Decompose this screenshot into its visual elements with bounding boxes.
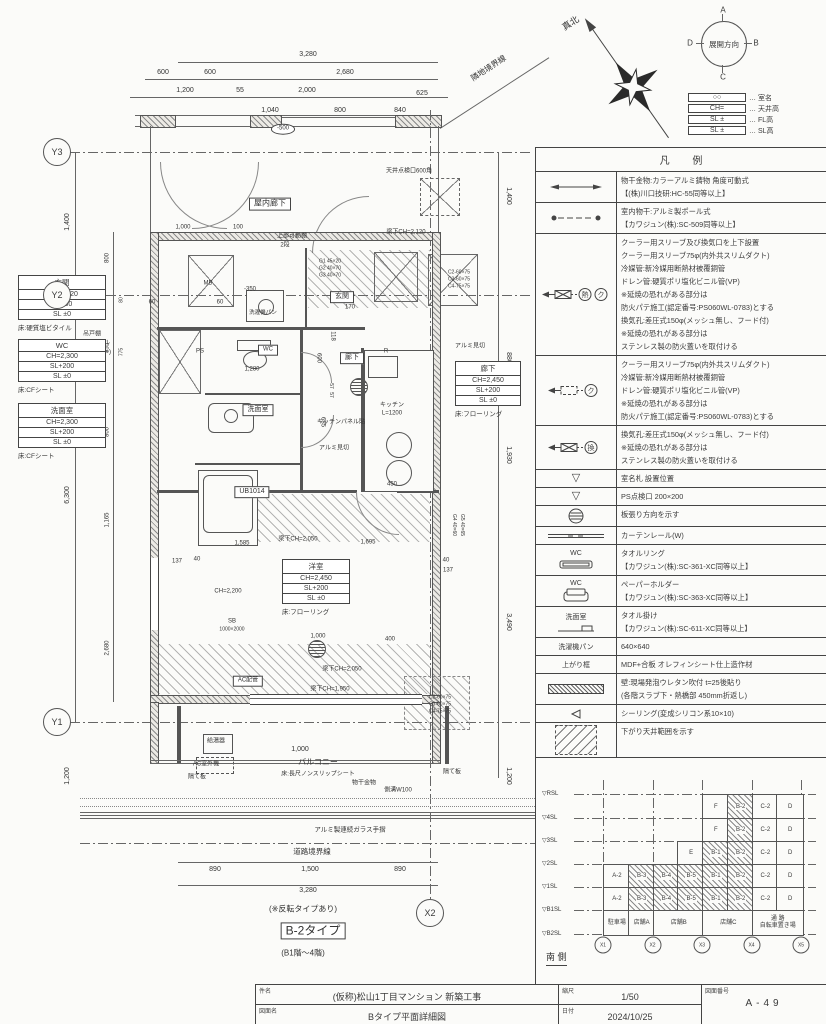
bathtub	[203, 475, 253, 533]
plan-label: G1 45×20	[319, 259, 341, 265]
drawing-name-value: Bタイプ平面詳細図	[256, 1006, 558, 1023]
unit-cell-hatched: B-2	[727, 864, 755, 889]
legend-text: MDF+合板 オレフィンシート仕上造作材	[617, 656, 826, 673]
unit-cell: D	[776, 841, 804, 866]
level-label: ▽B2SL	[542, 930, 561, 937]
plan-label: CH=2,200	[214, 589, 241, 596]
unit-cell-hatched: B-2	[727, 794, 755, 820]
ceiling-access-box	[420, 178, 460, 216]
scale-row: 縮尺 1/50	[559, 985, 701, 1004]
dim-line	[113, 232, 114, 702]
plan-label: G4 40×60	[450, 514, 456, 536]
plan-label: 隣地境界線	[470, 54, 508, 83]
legend-symbol-sk: ク	[536, 356, 617, 425]
legend-title: 凡 例	[536, 148, 826, 172]
plan-label: 1,400	[64, 213, 72, 231]
plan-label: 40	[194, 557, 201, 564]
legend-symbol-drop	[536, 723, 617, 757]
legend-symbol-ring: WC	[536, 545, 617, 575]
dim-line	[178, 885, 438, 886]
plan-label: 1,695	[360, 540, 375, 547]
elevation-grid-bubble-x4: X4	[743, 937, 760, 954]
legend-text: 板張り方向を示す	[617, 506, 826, 526]
legend-row: ▽室名札 設置位置	[536, 470, 826, 488]
plan-label: 57	[327, 383, 333, 389]
plan-label: R	[384, 349, 388, 356]
plan-label: 2,680	[336, 69, 354, 77]
legend-symbol-caption: WC	[570, 550, 582, 557]
room-tag-row: 洗面室	[18, 403, 106, 418]
plan-label: 1,400	[504, 187, 512, 205]
wall-segment	[395, 115, 442, 128]
plan-label: 1,200	[176, 87, 194, 95]
elevation-grid-bubble-x5: X5	[793, 937, 810, 954]
plan-label: キッチン	[380, 403, 404, 410]
grid-bubble-y2: Y2	[43, 281, 71, 309]
unit-cell: D	[776, 887, 804, 912]
legend-text: クーラー用スリーブ75φ(内外共スリムダクト)冷媒管:新冷媒用断熱材被覆銅管ドレ…	[617, 356, 826, 425]
plan-label: 1,585	[234, 541, 249, 548]
plan-label: 道路境界線	[293, 848, 331, 856]
plan-label: 625	[416, 90, 428, 98]
unit-cell-hatched: B-3	[628, 864, 656, 889]
key-table-row: SL ±… SL高	[688, 125, 822, 136]
compass-dir-b: B	[753, 39, 758, 48]
plan-label: 屋内廊下	[249, 198, 291, 211]
plan-label: 1,500	[301, 866, 319, 874]
plan-label: 1,165	[105, 512, 112, 527]
grid-line-y3	[70, 152, 530, 153]
legend-symbol-vh: 換	[536, 426, 617, 469]
legend-symbol-wall	[536, 674, 617, 704]
plan-label: G3 40×70	[319, 273, 341, 279]
svg-text:ク: ク	[598, 291, 605, 299]
plan-label: 梁下CH=2,050	[322, 667, 361, 674]
key-table-symbol: SL ±	[688, 115, 746, 124]
plan-label: 55	[236, 87, 244, 95]
compass-tick	[744, 43, 752, 44]
drawing-name-label: 図面名	[259, 1006, 277, 1015]
unfold-direction-circle: 展開方向	[701, 21, 747, 67]
flooring-direction-icon	[308, 640, 326, 658]
plan-label: 1,000	[291, 746, 309, 754]
balcony-sliding-window	[250, 694, 422, 705]
kitchen-cabinet	[368, 356, 398, 378]
wall-segment	[140, 115, 176, 128]
unit-cell: A-2	[603, 864, 631, 889]
elevation-grid-bubble-x2: X2	[644, 937, 661, 954]
unit-cell-hatched: B-4	[653, 887, 681, 912]
legend-row: 熱ククーラー用スリーブ及び換気口を上下設置クーラー用スリーブ75φ(内外共スリム…	[536, 234, 826, 356]
legend-row: ククーラー用スリーブ75φ(内外共スリムダクト)冷媒管:新冷媒用断熱材被覆銅管ド…	[536, 356, 826, 426]
room-tag: 廊下CH=2,450SL+200SL ±0床:フローリング	[455, 362, 521, 418]
legend-symbol-seal	[536, 705, 617, 722]
plan-label: C2-60×75	[448, 270, 470, 276]
plan-label: 600	[204, 69, 216, 77]
legend-symbol-holder: WC	[536, 576, 617, 606]
room-tag-row: 洋室	[282, 559, 350, 574]
subject-label: 件名	[259, 986, 271, 995]
plan-label: AC室外機	[193, 762, 219, 769]
plan-label: 80	[119, 297, 125, 303]
dim-line	[178, 862, 438, 863]
unit-cell-hatched: B-1	[702, 864, 730, 889]
plan-label: 洗濯機パン	[249, 310, 277, 316]
plan-label: G5 40×65	[458, 514, 464, 536]
legend-text: 640×640	[617, 638, 826, 655]
plan-label: 1,000	[310, 634, 325, 641]
glass-handrail-line	[80, 815, 535, 816]
legend-text: 下がり天井範囲を示す	[617, 723, 826, 757]
legend-row: 板張り方向を示す	[536, 506, 826, 527]
svg-text:換: 換	[588, 443, 595, 452]
legend-row: シーリング(変成シリコン系10×10)	[536, 705, 826, 723]
unit-cell: 店舗B	[653, 910, 706, 936]
unit-cell-hatched: B-1	[702, 887, 730, 912]
level-label: ▽4SL	[542, 814, 557, 821]
glass-handrail-line	[80, 812, 535, 813]
plan-label: C4-75×75	[429, 709, 451, 715]
plan-label: 1,930	[504, 446, 512, 464]
balcony-partition-board	[177, 706, 181, 764]
drawing-number-label: 図面番号	[705, 986, 729, 995]
dim-line	[130, 97, 448, 98]
dim-line	[145, 79, 438, 80]
entry-door-swing-arc	[312, 196, 369, 253]
grid-bubble-y1: Y1	[43, 708, 71, 736]
plan-label: 400	[385, 637, 395, 644]
legend-text: カーテンレール(W)	[617, 527, 826, 544]
legend-row: 換換気孔:差圧式150φ(メッシュ無し、フード付)※延焼の恐れがある部分はステン…	[536, 426, 826, 470]
plan-label: 1,200	[504, 767, 512, 785]
plan-label: 上部可動棚	[277, 234, 307, 241]
legend-row: 下がり天井範囲を示す	[536, 723, 826, 757]
unit-cell: 通 路 自転車置き場	[752, 910, 805, 936]
legend-row: 洗濯機パン640×640	[536, 638, 826, 656]
plan-label: UB1014	[234, 486, 269, 498]
legend-row: 上がり框MDF+合板 オレフィンシート仕上造作材	[536, 656, 826, 674]
key-table-symbol: ○○	[688, 93, 746, 102]
plan-label: 梁下CH=2,050	[278, 537, 317, 544]
unit-cell: D	[776, 818, 804, 843]
compass-dir-d: D	[687, 39, 693, 48]
plan-label: C3-60×75	[429, 702, 451, 708]
dim-line	[178, 62, 438, 63]
legend-row: WCペーパーホルダー【カワジュン(株):SC-363-XC同等以上】	[536, 576, 826, 607]
legend-text: ペーパーホルダー【カワジュン(株):SC-363-XC同等以上】	[617, 576, 826, 606]
side-window	[150, 558, 159, 630]
plan-label: 890	[394, 866, 406, 874]
room-tag: 洗面室CH=2,300SL+200SL ±0床:CFシート	[18, 404, 106, 460]
unit-cell: C-2	[752, 794, 780, 820]
level-label: ▽B1SL	[542, 906, 561, 913]
unit-cell-hatched: B-4	[653, 864, 681, 889]
room-tag: 洋室CH=2,450SL+200SL ±0床:フローリング	[282, 560, 350, 616]
grid-line-x2	[430, 110, 431, 900]
elevation-title: 南 側	[546, 950, 567, 966]
plan-label: 側溝W100	[384, 788, 412, 795]
legend-text: クーラー用スリーブ及び換気口を上下設置クーラー用スリーブ75φ(内外共スリムダク…	[617, 234, 826, 355]
legend-symbol-none: 上がり框	[536, 656, 617, 673]
legend-text: 壁:現場発泡ウレタン吹付 t=25後貼り(各階スラブ下・熱橋部 450mm折返し…	[617, 674, 826, 704]
room-tag-floor-note: 床:硬質塩ビタイル	[18, 320, 106, 332]
plan-label: -500	[271, 124, 295, 135]
plan-label: 2,680	[105, 640, 112, 655]
legend-symbol-caption: 洗面室	[566, 612, 587, 622]
legend-text: 室内物干:アルミ製ポール式【カワジュン(株):SC-509同等以上】	[617, 203, 826, 233]
legend-symbol-tri: ▽	[536, 488, 617, 505]
unit-cell: F	[702, 818, 730, 843]
legend-row: 室内物干:アルミ製ポール式【カワジュン(株):SC-509同等以上】	[536, 203, 826, 234]
legend-text: 物干金物:カラーアルミ鋳物 角度可動式【(株)川口技研:HC-55同等以上】	[617, 172, 826, 202]
plan-label: 137	[443, 568, 453, 575]
legend-symbol-ad	[536, 203, 617, 233]
legend-symbol-bar: 洗面室	[536, 607, 617, 637]
svg-text:ク: ク	[588, 387, 595, 395]
key-table-label: … 天井高	[749, 104, 779, 114]
grid-bubble-y3: Y3	[43, 138, 71, 166]
plan-label: 1000×2000	[219, 627, 244, 633]
plan-label: キッチンパネル貼	[317, 420, 365, 427]
legend-row: 洗面室タオル掛け【カワジュン(株):SC-611-XC同等以上】	[536, 607, 826, 638]
room-tag-key-table: ○○… 室名CH=… 天井高SL ±… FL高SL ±… SL高	[688, 92, 822, 136]
plan-label: 床:長尺ノンスリップシート	[281, 772, 355, 779]
plan-label: 170	[345, 305, 355, 312]
door-swing-arc	[192, 162, 259, 229]
plan-label: L=1200	[382, 411, 402, 418]
dim-line	[498, 152, 499, 778]
unit-cell-hatched: B-3	[628, 887, 656, 912]
drawing-number-value: A-49	[702, 998, 826, 1009]
room-tag-floor-note: 床:フローリング	[282, 604, 350, 616]
unit-cell: 店舗C	[702, 910, 755, 936]
plan-label: アルミ見切	[319, 446, 349, 453]
key-table-symbol: CH=	[688, 104, 746, 113]
room-tag-row: SL ±0	[455, 395, 521, 406]
plan-label: 800	[105, 253, 112, 263]
plan-label: アルミ製連続ガラス手摺	[314, 826, 385, 833]
plan-label: C4-75×75	[448, 284, 470, 290]
legend-symbol-caption: WC	[570, 580, 582, 587]
plan-label: B-2タイプ	[281, 922, 346, 939]
legend-symbol-tri: ▽	[536, 470, 617, 487]
plan-label: 廊下	[340, 352, 364, 364]
legend-symbol-caption: 上がり框	[562, 660, 590, 670]
plan-label: C2-60×75	[429, 695, 451, 701]
plan-label: -350	[244, 287, 256, 294]
unit-cell: C-2	[752, 864, 780, 889]
plan-label: 玄関	[330, 291, 354, 303]
unit-cell: C-2	[752, 818, 780, 843]
legend-text: 換気孔:差圧式150φ(メッシュ無し、フード付)※延焼の恐れがある部分はステンレ…	[617, 426, 826, 469]
plan-label: 隔て板	[443, 770, 461, 777]
level-label: ▽1SL	[542, 883, 557, 890]
plan-label: 1,000	[175, 225, 190, 232]
unit-cell: D	[776, 864, 804, 889]
svg-text:熱: 熱	[582, 290, 589, 299]
unit-cell-hatched: B-2	[727, 887, 755, 912]
plan-label: 吊戸棚	[83, 332, 101, 339]
legend-text: シーリング(変成シリコン系10×10)	[617, 705, 826, 722]
plan-label: 775	[119, 348, 125, 356]
balcony-wall-left	[150, 702, 159, 764]
legend-text: タオルリング【カワジュン(株):SC-361-XC同等以上】	[617, 545, 826, 575]
date-label: 日付	[562, 1006, 574, 1015]
plan-label: WC	[258, 345, 278, 356]
room-tag-row: SL ±0	[18, 437, 106, 448]
unit-cell-hatched: B-2	[727, 841, 755, 866]
room-tag: WCCH=2,300SL+200SL ±0床:CFシート	[18, 340, 106, 394]
room-tag-floor-note: 床:CFシート	[18, 448, 106, 460]
plan-label: 1,040	[261, 107, 279, 115]
plan-label: 3,280	[299, 887, 317, 895]
elevation-grid-bubble-x1: X1	[595, 937, 612, 954]
road-boundary-line	[80, 843, 535, 844]
legend-text: PS点検口 200×200	[617, 488, 826, 505]
legend-row: WCタオルリング【カワジュン(株):SC-361-XC同等以上】	[536, 545, 826, 576]
partition	[195, 463, 302, 465]
date-row: 日付 2024/10/25	[559, 1004, 701, 1024]
plan-label: 3,280	[299, 51, 317, 59]
legend-symbol-rail	[536, 527, 617, 544]
key-table-row: ○○… 室名	[688, 92, 822, 103]
partition	[205, 393, 302, 395]
plan-label: 梁下CH=2,120	[386, 230, 425, 237]
level-label: ▽RSL	[542, 790, 558, 797]
plan-label: 2,000	[298, 87, 316, 95]
partition	[157, 327, 365, 330]
unit-cell: C-2	[752, 841, 780, 866]
plan-label: (B1階〜4階)	[281, 950, 325, 959]
legend-text: 室名札 設置位置	[617, 470, 826, 487]
dropped-ceiling-hatch	[250, 494, 430, 542]
key-table-label: … FL高	[749, 115, 773, 125]
scale-value: 1/50	[559, 988, 701, 1002]
room-tag-row: 廊下	[455, 361, 521, 376]
plan-label: G2 40×70	[319, 266, 341, 272]
drawing-name-row: 図面名 Bタイプ平面詳細図	[256, 1004, 558, 1024]
room-tag-row: SL ±0	[282, 593, 350, 604]
legend-symbol-a2	[536, 172, 617, 202]
unit-cell-hatched: B-2	[727, 818, 755, 843]
plan-label: 137	[172, 559, 182, 566]
plan-label: 梁下CH=1,950	[310, 687, 349, 694]
plan-label: 洗面室	[243, 404, 274, 416]
plan-label: 1,200	[64, 767, 72, 785]
unit-cell: A-2	[603, 887, 631, 912]
room-tag-row: SL ±0	[18, 309, 106, 320]
plan-label: C3-60×75	[448, 277, 470, 283]
dropped-ceiling-hatch	[159, 644, 431, 694]
plan-label: AC配管	[233, 676, 263, 687]
plan-label: 57	[327, 392, 333, 398]
grid-bubble-x2: X2	[416, 899, 444, 927]
key-table-label: … 室名	[749, 93, 772, 103]
legend-row: ▽PS点検口 200×200	[536, 488, 826, 506]
scale-label: 縮尺	[562, 986, 574, 995]
kitchen-sink	[386, 432, 412, 458]
title-block: 件名 (仮称)松山1丁目マンション 新築工事 図面名 Bタイプ平面詳細図 縮尺 …	[255, 984, 826, 1024]
washbasin-drain	[224, 409, 238, 423]
legend-row: 壁:現場発泡ウレタン吹付 t=25後貼り(各階スラブ下・熱橋部 450mm折返し…	[536, 674, 826, 705]
key-table-row: CH=… 天井高	[688, 103, 822, 114]
partition	[305, 248, 307, 328]
plan-label: 3,490	[504, 613, 512, 631]
gutter-band	[80, 798, 535, 807]
unit-cell-hatched: B-5	[677, 864, 705, 889]
plan-label: 2段	[280, 243, 289, 250]
plan-label: 100	[233, 225, 243, 232]
unit-cell: D	[776, 794, 804, 820]
legend-row: カーテンレール(W)	[536, 527, 826, 545]
compass-dir-c: C	[720, 73, 726, 82]
flooring-direction-icon	[350, 378, 368, 396]
plan-label: 隔て板	[188, 775, 206, 782]
subject-value: (仮称)松山1丁目マンション 新築工事	[256, 986, 558, 1003]
room-tag-floor-note: 床:フローリング	[455, 406, 521, 418]
plan-label: 1,280	[244, 367, 259, 374]
unit-cell-hatched: B-5	[677, 887, 705, 912]
plan-label: (※反転タイプあり)	[269, 906, 337, 915]
level-label: ▽2SL	[542, 860, 557, 867]
glass-handrail-line	[80, 818, 535, 819]
pipe-space-box	[159, 330, 201, 394]
subject-row: 件名 (仮称)松山1丁目マンション 新築工事	[256, 985, 558, 1004]
key-table-label: … SL高	[749, 126, 774, 136]
key-table-row: SL ±… FL高	[688, 114, 822, 125]
corridor-wall-line	[150, 126, 151, 232]
elevation-grid-bubble-x3: X3	[694, 937, 711, 954]
unit-cell: F	[702, 794, 730, 820]
plan-label: 890	[209, 866, 221, 874]
plan-label: 600	[157, 69, 169, 77]
legend-symbol-none: 洗濯機パン	[536, 638, 617, 655]
plan-label: SB	[228, 619, 236, 626]
window-glass-line	[250, 698, 422, 699]
south-elevation-key: ▽RSL▽4SL▽3SL▽2SL▽1SL▽B1SL▽B2SLFB-2C-2DFB…	[535, 757, 826, 986]
legend-table: 凡 例 物干金物:カラーアルミ鋳物 角度可動式【(株)川口技研:HC-55同等以…	[535, 147, 826, 758]
plan-label: 物干金物	[352, 781, 376, 788]
plan-label: 給湯器	[207, 739, 225, 746]
unit-cell: E	[677, 841, 705, 866]
plan-label: バルコニー	[298, 759, 338, 768]
plan-label: 118	[329, 331, 336, 341]
compass-tick	[722, 65, 723, 73]
plan-label: 60	[149, 300, 156, 307]
plan-label: 450	[387, 482, 397, 489]
plan-label: PS	[196, 349, 204, 356]
legend-symbol-shk: 熱ク	[536, 234, 617, 355]
room-tag-row: SL ±0	[18, 371, 106, 382]
plan-label: 40	[443, 558, 450, 565]
plan-label: 800	[334, 107, 346, 115]
legend-symbol-caption: 洗濯機パン	[558, 642, 593, 652]
unit-cell-hatched: B-1	[702, 841, 730, 866]
level-label: ▽3SL	[542, 837, 557, 844]
plan-label: 600	[315, 353, 322, 363]
legend-symbol-sc	[536, 506, 617, 526]
unit-cell: C-2	[752, 887, 780, 912]
unit-cell: 駐車場	[603, 910, 631, 936]
legend-text: タオル掛け【カワジュン(株):SC-611-XC同等以上】	[617, 607, 826, 637]
plan-label: アルミ見切	[455, 344, 485, 351]
compass-tick	[722, 14, 723, 22]
key-table-symbol: SL ±	[688, 126, 746, 135]
date-value: 2024/10/25	[559, 1008, 701, 1022]
compass-tick	[696, 43, 704, 44]
unit-cell: 店舗A	[628, 910, 656, 936]
plan-label: 天井点検口600角	[386, 169, 432, 176]
